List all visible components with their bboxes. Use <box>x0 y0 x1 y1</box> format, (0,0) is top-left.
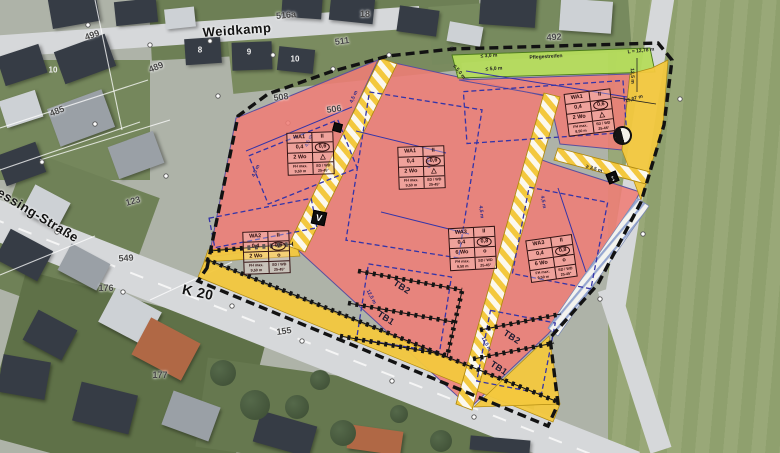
street-label-k20: K 20 <box>181 281 215 303</box>
sr: WA1II <box>398 146 443 157</box>
sc: II <box>311 132 333 142</box>
div: 25-45° <box>598 125 609 131</box>
div: 9,50 m <box>537 274 549 280</box>
traffic-calmed-v-sign-glyph: V <box>315 212 323 223</box>
parcel-label-18: 18 <box>360 9 370 19</box>
sr: 0,40,6 <box>288 141 333 153</box>
sc: 0,4 <box>244 242 268 252</box>
sc: WA3 <box>449 228 473 238</box>
sc: 0,4 <box>288 143 312 153</box>
sr: 2 Woo <box>244 250 289 262</box>
sc: △ <box>312 152 334 162</box>
sr: FH max.9,50 mSD / WD25-45° <box>244 260 289 274</box>
parcel-label-485: 485 <box>48 104 66 119</box>
sc: FH max.9,50 m <box>244 262 268 274</box>
street-label-lessing-strasse: essing-Straße <box>0 185 82 245</box>
sr: 0,40,6 <box>244 240 289 252</box>
schablone-wa1-west: WA1II0,40,62 Wo△FH max.9,50 mSD / WD25-4… <box>286 131 334 176</box>
house-number-8: 8 <box>198 46 202 55</box>
div: 9,50 m <box>295 169 307 174</box>
traffic-calmed-v-sign: V <box>311 210 328 227</box>
schablone-wa1-east: WA1II0,40,62 Wo△FH max.9,50 mSD / WD25-4… <box>564 88 616 136</box>
tri: △ <box>599 111 605 119</box>
sc: SD / WD25-45° <box>474 257 496 269</box>
div: 9,50 m <box>457 264 469 269</box>
parcel-label-177: 177 <box>152 370 167 380</box>
zone-label-tb1-east: TB1 <box>489 359 510 377</box>
parcel-label-176: 176 <box>98 283 113 293</box>
house-number-10: 10 <box>291 55 300 64</box>
sc: 2 Wo <box>288 153 312 163</box>
sc: o <box>268 251 290 261</box>
sc: WA1 <box>398 147 422 157</box>
ellipse: 0,6 <box>271 241 286 251</box>
parcel-label-508: 508 <box>273 91 289 103</box>
sc: SD / WD25-45° <box>268 261 290 273</box>
sc: SD / WD25-45° <box>554 265 577 279</box>
sr: FH max.9,50 mSD / WD25-45° <box>399 175 444 189</box>
parcel-label-506: 506 <box>326 103 342 115</box>
dim-12-5-a: 12,5 m <box>365 289 378 306</box>
dim-12-5-east: 12,5 m <box>629 68 636 84</box>
sr: FH max.9,50 mSD / WD25-45° <box>288 161 333 175</box>
div: 25-45° <box>560 271 571 277</box>
dim-4-5-b: 4,5 m <box>349 90 360 104</box>
sc: FH max.9,50 m <box>568 122 593 136</box>
sc: SD / WD25-45° <box>312 162 334 174</box>
sc: FH max.9,50 m <box>399 177 423 189</box>
sr: WA2II <box>243 231 288 242</box>
parcel-label-489: 489 <box>147 60 165 75</box>
sc: △ <box>423 166 445 176</box>
small-plan-sign <box>332 122 343 133</box>
parcel-label-511: 511 <box>334 35 350 47</box>
sc: II <box>267 231 289 241</box>
dim-4-5-f: 4,5 m <box>539 195 547 209</box>
sc: 0,8 <box>473 237 495 247</box>
sr: FH max.9,50 mSD / WD25-45° <box>450 256 496 270</box>
div: 25-45° <box>429 182 440 187</box>
street-label-weidkamp: Weidkamp <box>202 20 272 40</box>
div: 9,50 m <box>406 183 418 188</box>
tri: △ <box>431 167 437 174</box>
parcel-label-549: 549 <box>118 252 134 263</box>
div: 9,50 m <box>251 268 263 273</box>
sc: FH max.9,50 m <box>451 258 475 270</box>
sc: 2 Wo <box>244 252 268 262</box>
schablone-wa1-mid: WA1II0,40,62 Wo△FH max.9,50 mSD / WD25-4… <box>397 145 445 190</box>
parcel-label-492: 492 <box>546 31 562 42</box>
sc: FH max.9,50 m <box>288 163 312 175</box>
schablone-wa3-east: WA3II0,40,86 WooFH max.9,50 mSD / WD25-4… <box>525 234 578 283</box>
tri: △ <box>320 153 326 160</box>
house-number-9: 9 <box>247 48 251 57</box>
sr: 2 Wo△ <box>288 151 333 163</box>
house-number-10b: 10 <box>49 66 58 75</box>
sc: 0,6 <box>311 142 333 152</box>
sc: 2 Wo <box>399 167 423 177</box>
sc: 0,4 <box>449 238 473 248</box>
ellipse: 0,6 <box>426 156 441 166</box>
schablone-wa2: WA2II0,40,62 WooFH max.9,50 mSD / WD25-4… <box>242 230 290 275</box>
sc: 6 Wo <box>450 248 474 258</box>
schablone-wa3-mid: WA3II0,40,86 WooFH max.9,50 mSD / WD25-4… <box>448 226 497 271</box>
dim-4-5-e: 4,5 m <box>477 205 485 218</box>
div: 9,50 m <box>575 128 587 134</box>
labels-layer: Weidkampessing-StraßeK 20489499485123549… <box>0 0 780 453</box>
sc: SD / WD25-45° <box>592 119 615 133</box>
sr: 0,40,6 <box>399 155 444 167</box>
zone-label-tb2-west: TB2 <box>392 278 413 296</box>
dim-12-5-b: 12,5 m <box>480 336 493 353</box>
sc: o <box>474 247 496 257</box>
sc: WA1 <box>287 133 311 143</box>
sr: WA1II <box>287 132 332 143</box>
ellipse: 0,6 <box>315 142 330 152</box>
dim-green-strip-width: ≤ 3,0 m <box>480 53 497 60</box>
sc: 0,6 <box>267 241 289 251</box>
sc: 0,4 <box>399 157 423 167</box>
dim-3-5-path: ≥ 3,5 m <box>585 164 603 175</box>
zone-label-tb2-east: TB2 <box>502 328 523 346</box>
sc: SD / WD25-45° <box>423 176 445 188</box>
parcel-label-499: 499 <box>83 28 101 43</box>
dim-4-5-c: 4,5 m <box>251 164 262 178</box>
parcel-label-155: 155 <box>276 325 292 337</box>
sc: FH max.9,50 m <box>531 268 556 282</box>
parcel-label-123: 123 <box>124 194 141 208</box>
sc: 0,6 <box>422 156 444 166</box>
div: 25-45° <box>318 168 329 173</box>
dim-5m-b: ≤ 5,0 m <box>451 63 466 80</box>
dim-15-07: 15,07 m <box>624 94 643 105</box>
dim-l-12-78: L ≈ 12,78 m <box>627 47 654 56</box>
div: 25-45° <box>274 267 285 272</box>
sc: II <box>422 146 444 156</box>
footpath-sign-glyph: ↕ <box>609 172 617 183</box>
dim-pflegestreifen: Pflegestreifen <box>529 53 562 61</box>
sr: 2 Wo△ <box>399 165 444 177</box>
zone-label-tb1-west: TB1 <box>376 309 397 327</box>
div: 25-45° <box>480 263 491 268</box>
sc: WA2 <box>243 232 267 242</box>
sc: II <box>472 227 494 237</box>
ellipse: 0,8 <box>477 237 492 247</box>
zoning-plan-map: Weidkampessing-StraßeK 20489499485123549… <box>0 0 780 453</box>
footpath-sign: ↕ <box>605 170 619 184</box>
dim-5m-a: ≤ 5,0 m <box>485 66 502 73</box>
parcel-label-516a: 516a <box>276 9 297 21</box>
